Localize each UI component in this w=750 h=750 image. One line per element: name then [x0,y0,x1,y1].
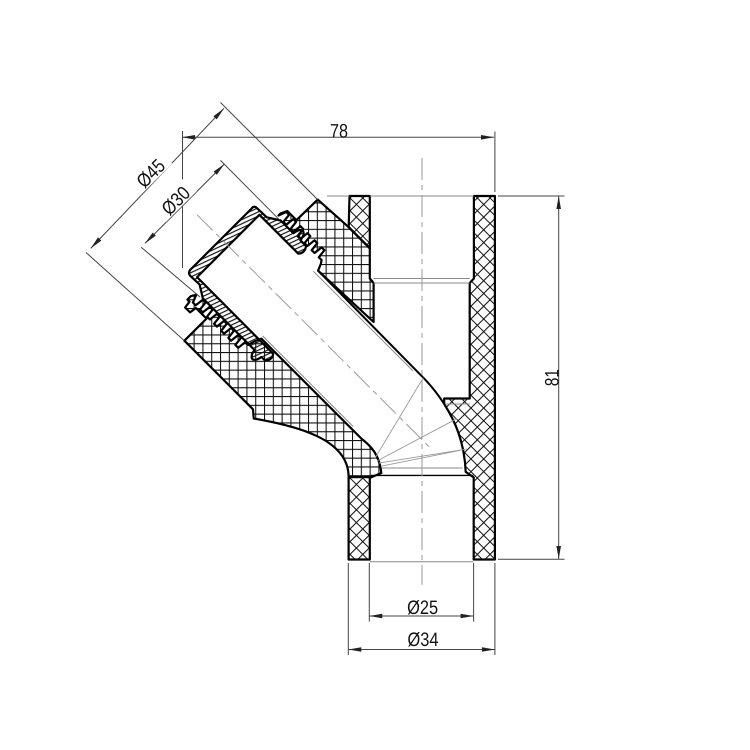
svg-text:81: 81 [542,369,564,386]
svg-text:Ø34: Ø34 [408,629,439,651]
svg-text:Ø25: Ø25 [407,597,438,619]
svg-text:78: 78 [330,121,348,143]
